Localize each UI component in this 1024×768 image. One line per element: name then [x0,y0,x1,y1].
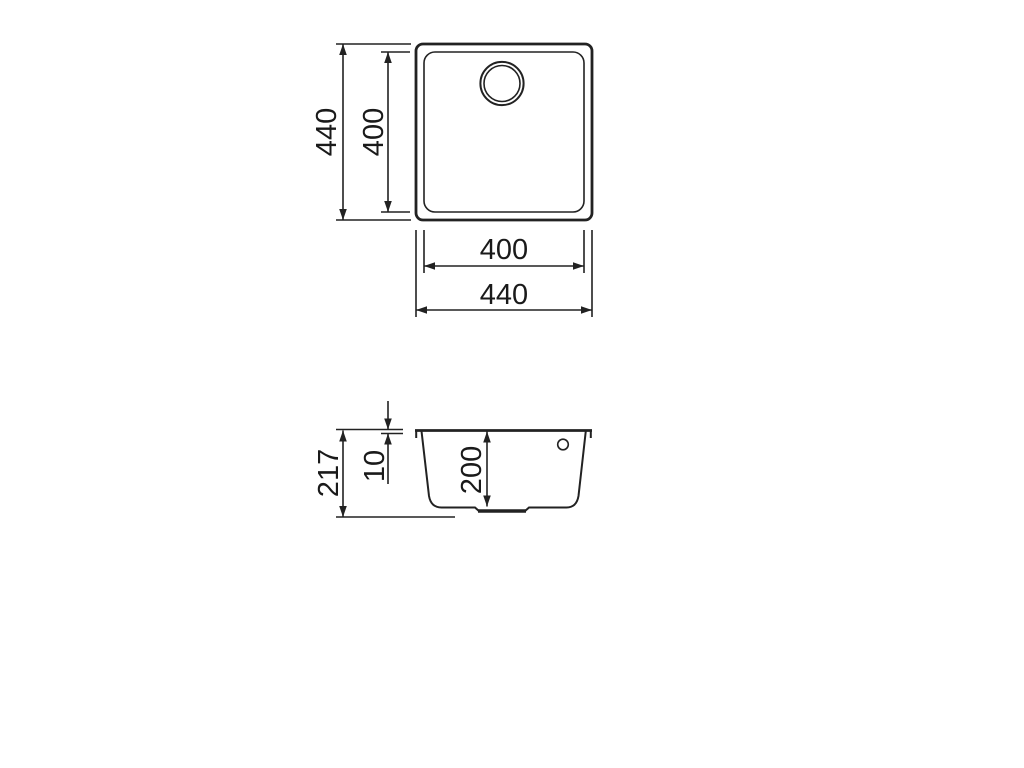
drain-outer-circle [480,62,523,105]
arrow-down-icon [483,496,491,507]
dim-label-total-height: 217 [313,449,345,497]
dim-label-outer-height: 440 [311,108,343,156]
section-bowl-profile [422,431,586,512]
top-view-inner-bowl [424,52,584,212]
arrow-up-icon [384,434,392,445]
arrow-down-icon [339,209,347,220]
dim-label-outer-width: 440 [480,279,528,311]
arrow-right-icon [573,262,584,270]
section-view: 217 10 200 [313,401,592,517]
sink-technical-drawing: 440 400 400 440 [0,0,1024,768]
top-view: 440 400 400 440 [311,44,592,317]
arrow-down-icon [384,201,392,212]
arrow-left-icon [416,306,427,314]
drain-inner-circle [484,66,520,102]
overflow-hole-icon [558,439,569,450]
arrow-up-icon [384,52,392,63]
arrow-right-icon [581,306,592,314]
top-view-outer-rim [416,44,592,220]
dim-label-bowl-depth: 200 [456,446,488,494]
arrow-up-icon [483,432,491,443]
dim-label-inner-width: 400 [480,234,528,266]
page-background: 440 400 400 440 [0,0,1024,768]
arrow-left-icon [424,262,435,270]
dim-label-rim-height: 10 [359,450,391,482]
arrow-up-icon [339,431,347,442]
arrow-down-icon [339,506,347,517]
arrow-down-icon [384,419,392,430]
dim-label-inner-height: 400 [358,108,390,156]
arrow-up-icon [339,44,347,55]
